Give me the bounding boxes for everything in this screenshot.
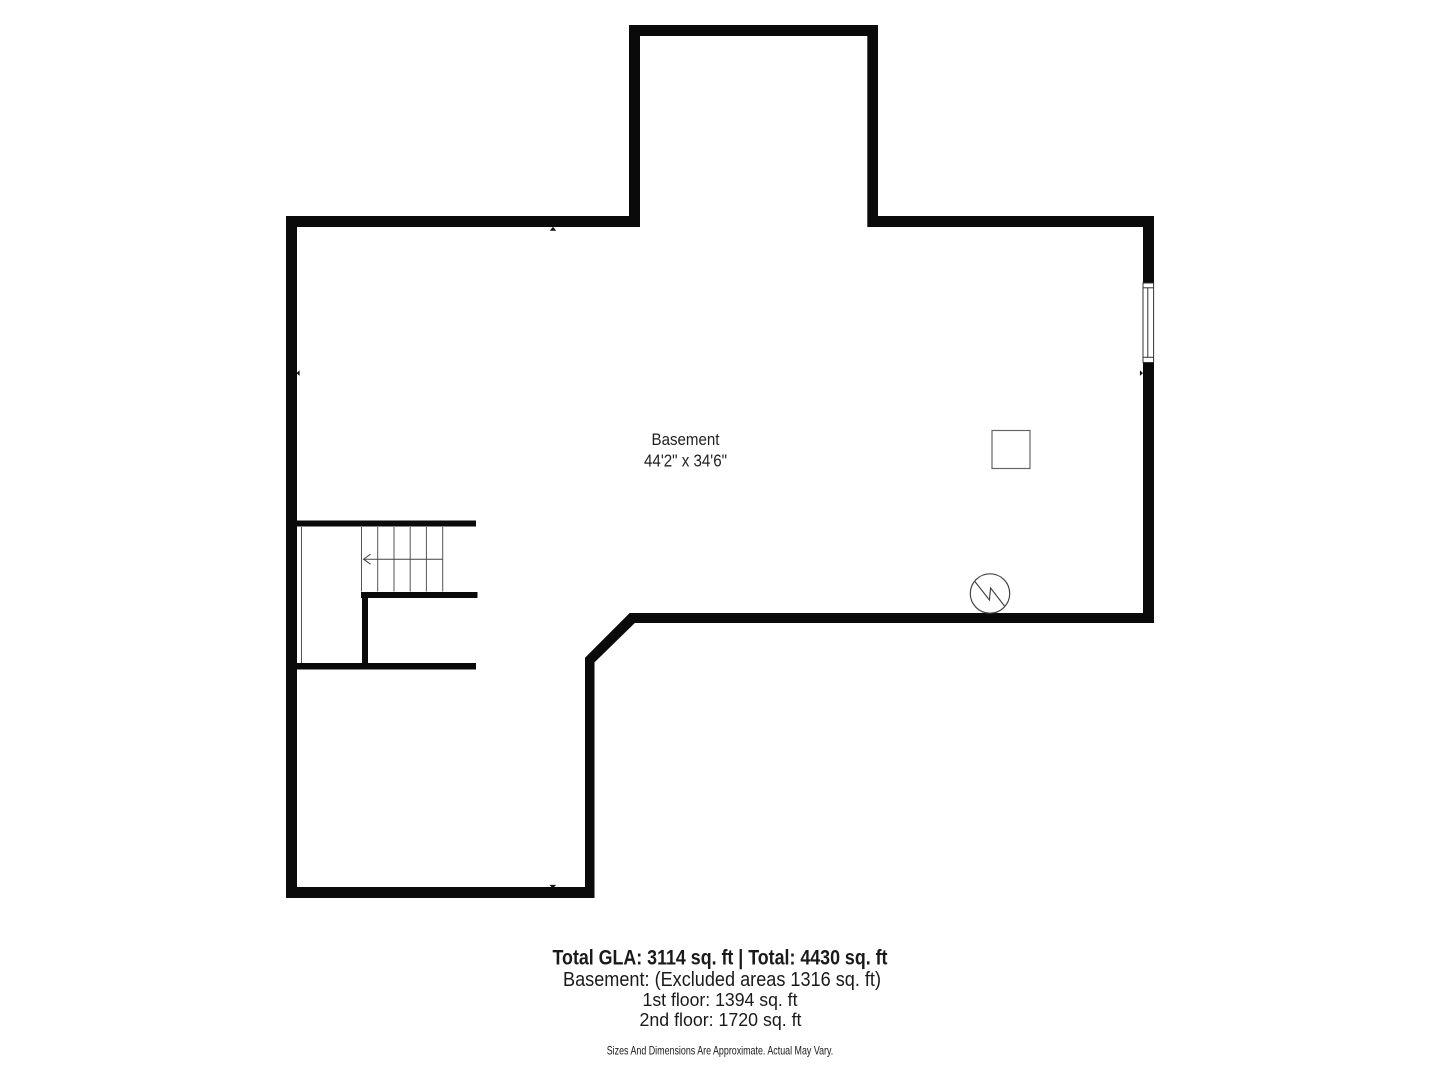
svg-text:2nd floor: 1720 sq. ft: 2nd floor: 1720 sq. ft: [640, 1010, 802, 1030]
svg-text:Basement: Basement: [652, 431, 720, 449]
svg-text:Total GLA: 3114 sq. ft | Total: Total GLA: 3114 sq. ft | Total: 4430 sq.…: [553, 947, 888, 970]
svg-text:Sizes And Dimensions Are Appro: Sizes And Dimensions Are Approximate. Ac…: [607, 1043, 834, 1057]
svg-text:44'2" x 34'6": 44'2" x 34'6": [644, 451, 727, 471]
svg-text:Basement: (Excluded areas 1316: Basement: (Excluded areas 1316 sq. ft): [563, 968, 881, 991]
svg-text:1st floor: 1394 sq. ft: 1st floor: 1394 sq. ft: [643, 990, 798, 1010]
